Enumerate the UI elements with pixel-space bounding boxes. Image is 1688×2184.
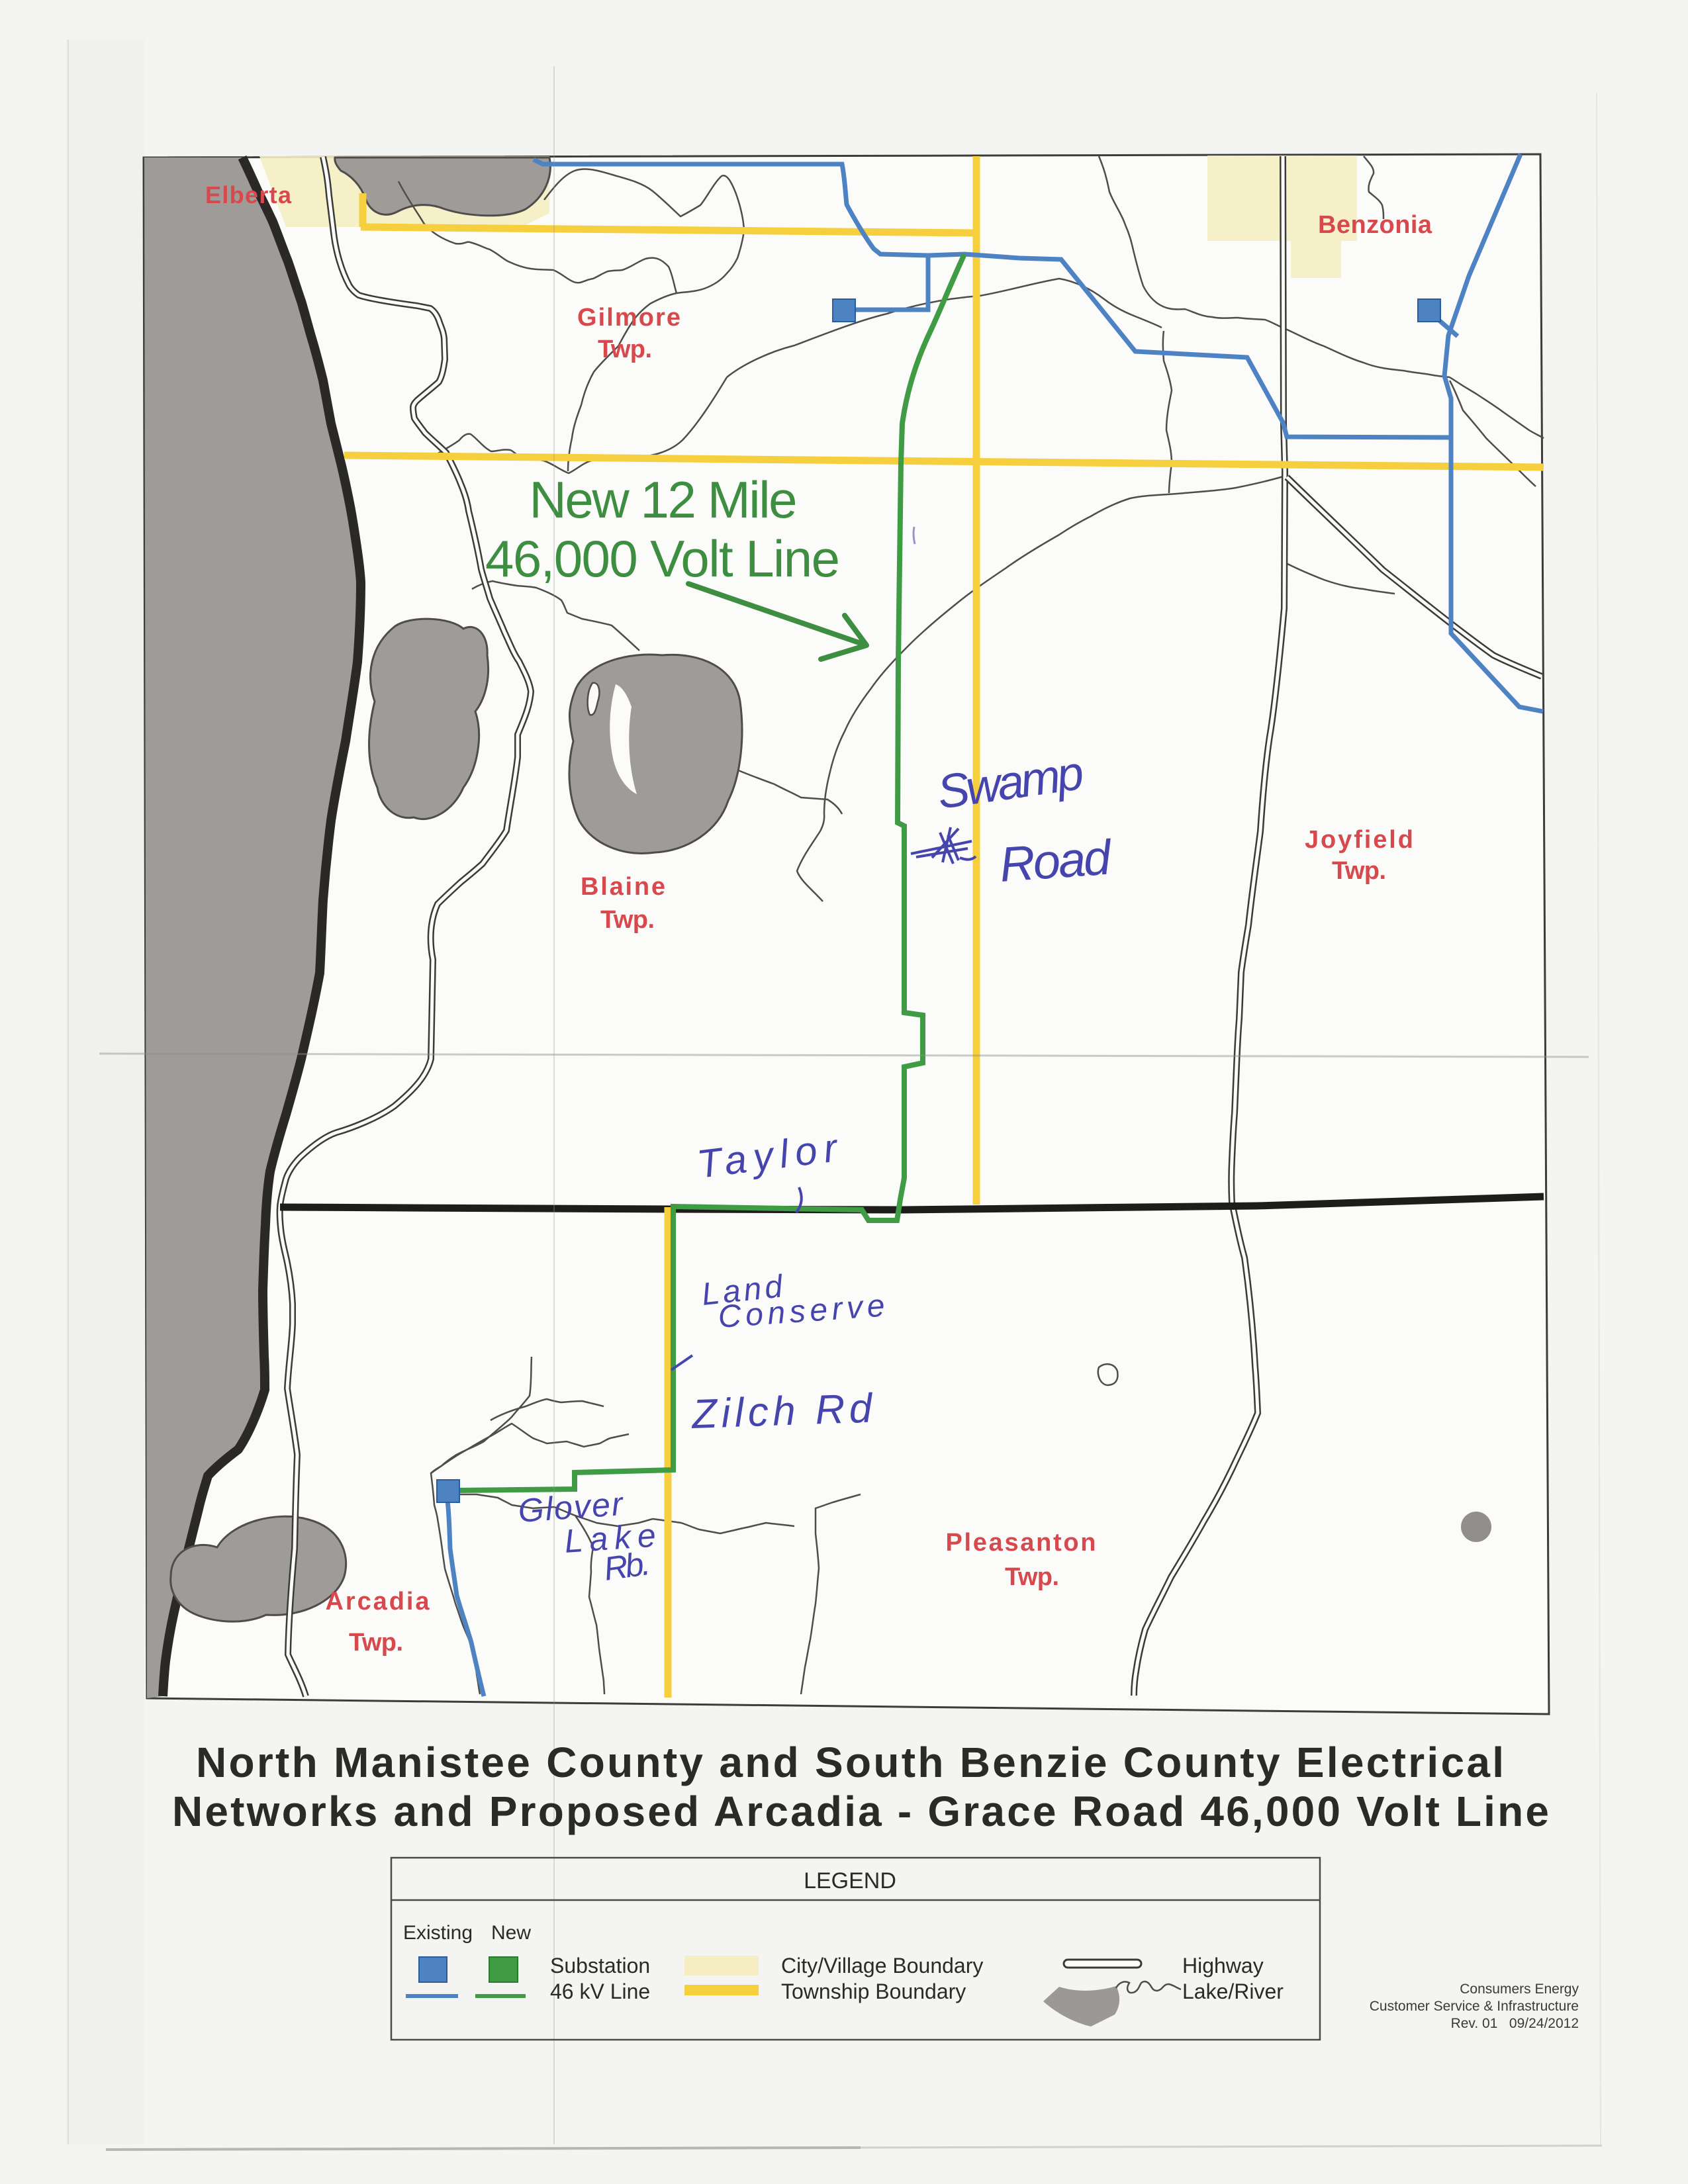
svg-text:Existing: Existing bbox=[403, 1922, 473, 1944]
svg-text:Twp.: Twp. bbox=[349, 1629, 403, 1657]
svg-text:North Manistee County and Sout: North Manistee County and South Benzie C… bbox=[196, 1739, 1504, 1786]
svg-text:New 12 Mile: New 12 Mile bbox=[530, 471, 798, 529]
svg-text:Consumers Energy: Consumers Energy bbox=[1460, 1981, 1579, 1997]
svg-text:Highway: Highway bbox=[1182, 1954, 1264, 1978]
svg-text:46 kV Line: 46 kV Line bbox=[550, 1979, 650, 2003]
svg-text:Twp.: Twp. bbox=[1005, 1563, 1059, 1591]
svg-text:Road: Road bbox=[998, 829, 1114, 892]
svg-text:Twp.: Twp. bbox=[600, 906, 655, 934]
svg-text:LEGEND: LEGEND bbox=[804, 1868, 896, 1893]
svg-text:46,000 Volt Line: 46,000 Volt Line bbox=[485, 529, 840, 588]
svg-text:New: New bbox=[491, 1922, 531, 1944]
svg-text:Rb.: Rb. bbox=[602, 1545, 653, 1588]
svg-text:Twp.: Twp. bbox=[598, 336, 652, 363]
svg-text:City/Village Boundary: City/Village Boundary bbox=[781, 1954, 983, 1978]
svg-text:Blaine: Blaine bbox=[581, 873, 665, 901]
svg-text:Benzonia: Benzonia bbox=[1318, 211, 1432, 239]
svg-text:Pleasanton: Pleasanton bbox=[946, 1529, 1096, 1557]
svg-text:Lake/River: Lake/River bbox=[1182, 1979, 1284, 2003]
svg-text:Elberta: Elberta bbox=[205, 181, 292, 208]
svg-text:Rev. 01 09/24/2012: Rev. 01 09/24/2012 bbox=[1451, 2016, 1579, 2031]
svg-text:Township Boundary: Township Boundary bbox=[781, 1979, 966, 2003]
svg-text:Substation: Substation bbox=[550, 1954, 650, 1978]
svg-text:Gilmore: Gilmore bbox=[577, 304, 680, 332]
svg-text:Twp.: Twp. bbox=[1332, 857, 1386, 885]
svg-text:Customer Service & Infrastruct: Customer Service & Infrastructure bbox=[1370, 1999, 1579, 2014]
